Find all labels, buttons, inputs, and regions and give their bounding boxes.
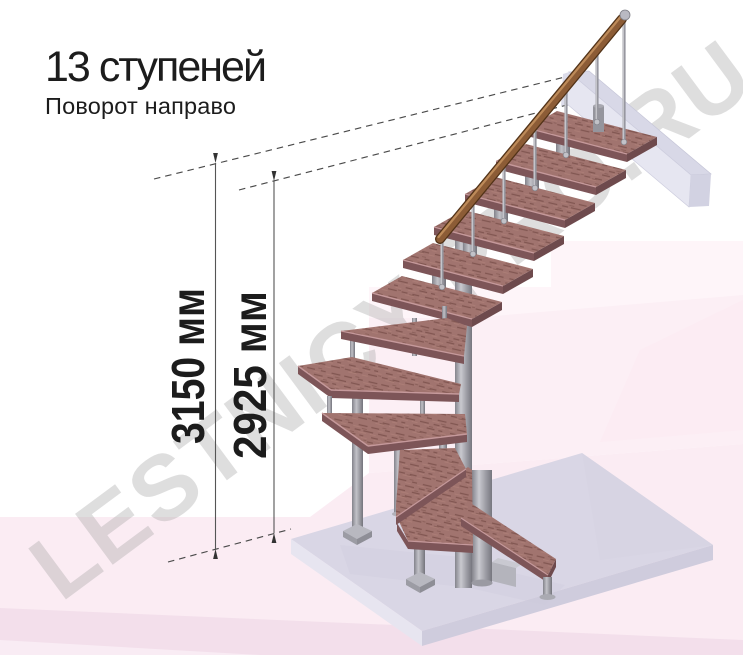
svg-text:3150 мм: 3150 мм [162,288,214,444]
svg-text:13 ступеней: 13 ступеней [45,43,267,91]
svg-text:2925 мм: 2925 мм [224,291,276,459]
svg-text:Поворот направо: Поворот направо [45,93,236,119]
